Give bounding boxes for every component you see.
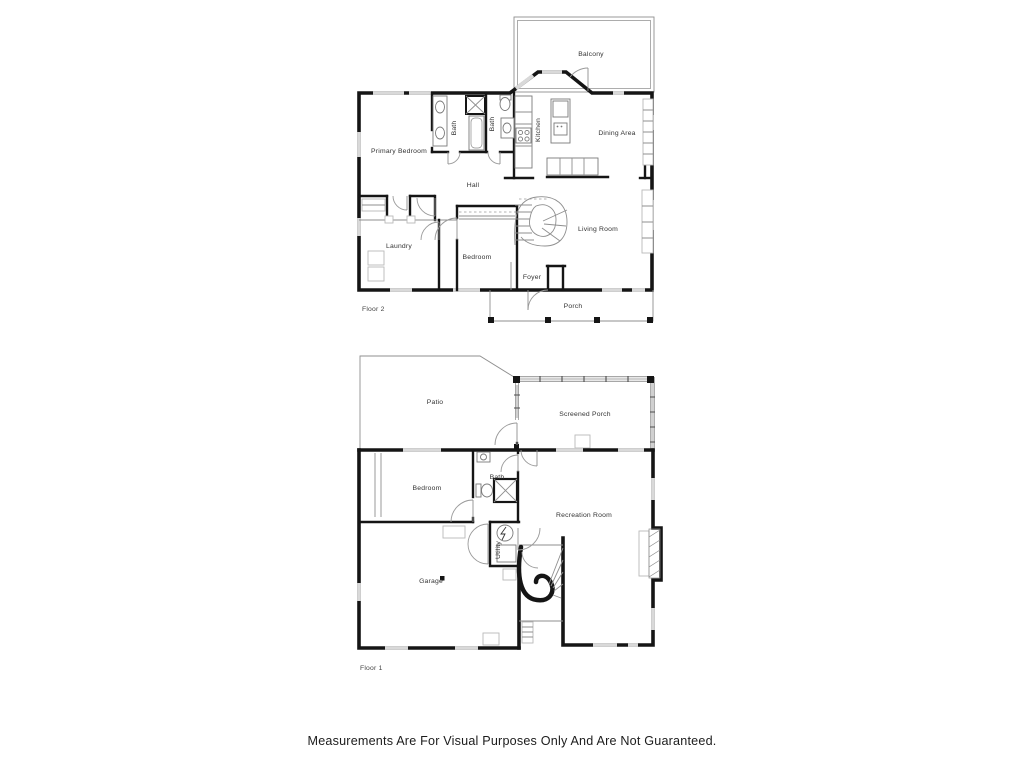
room-label-porch: Porch [564,303,583,310]
room-label-kitchen: Kitchen [535,118,542,142]
floor2-bath-fixtures [433,95,514,150]
floor1-label: Floor 1 [360,665,383,672]
floor1-plan: Patio Screened Porch Bedroom Bath Recrea… [359,356,661,672]
floorplan-svg: Balcony Primary Bedroom Bath Bath Kitche… [0,0,1024,768]
room-label-utility: Utility [495,541,502,559]
room-label-bath-a: Bath [451,121,458,136]
room-label-patio: Patio [427,399,444,406]
room-label-hall: Hall [467,182,480,189]
room-label-recreation-room: Recreation Room [556,512,612,519]
floor2-stairs [515,197,567,246]
room-label-living-room: Living Room [578,226,618,233]
floor2-kitchen-fixtures [515,96,598,175]
floor1-garage-details [440,526,516,645]
fireplace [639,529,660,578]
disclaimer-text: Measurements Are For Visual Purposes Onl… [0,734,1024,748]
floor2-label: Floor 2 [362,306,385,313]
room-label-bedroom-f2: Bedroom [463,254,492,261]
room-label-garage: Garage [419,578,443,585]
room-label-bath-f1: Bath [490,474,505,481]
room-label-bath-b: Bath [489,117,496,132]
room-label-foyer: Foyer [523,274,542,281]
room-label-balcony: Balcony [578,51,604,58]
room-label-dining-area: Dining Area [598,130,635,137]
floorplan-image: Balcony Primary Bedroom Bath Bath Kitche… [0,0,1024,768]
floor1-stairs [519,547,563,643]
room-label-screened-porch: Screened Porch [559,411,611,418]
room-label-laundry: Laundry [386,243,412,250]
floor2-plan: Balcony Primary Bedroom Bath Bath Kitche… [359,17,654,323]
room-label-bedroom-f1: Bedroom [413,485,442,492]
room-label-primary-bedroom: Primary Bedroom [371,148,427,155]
